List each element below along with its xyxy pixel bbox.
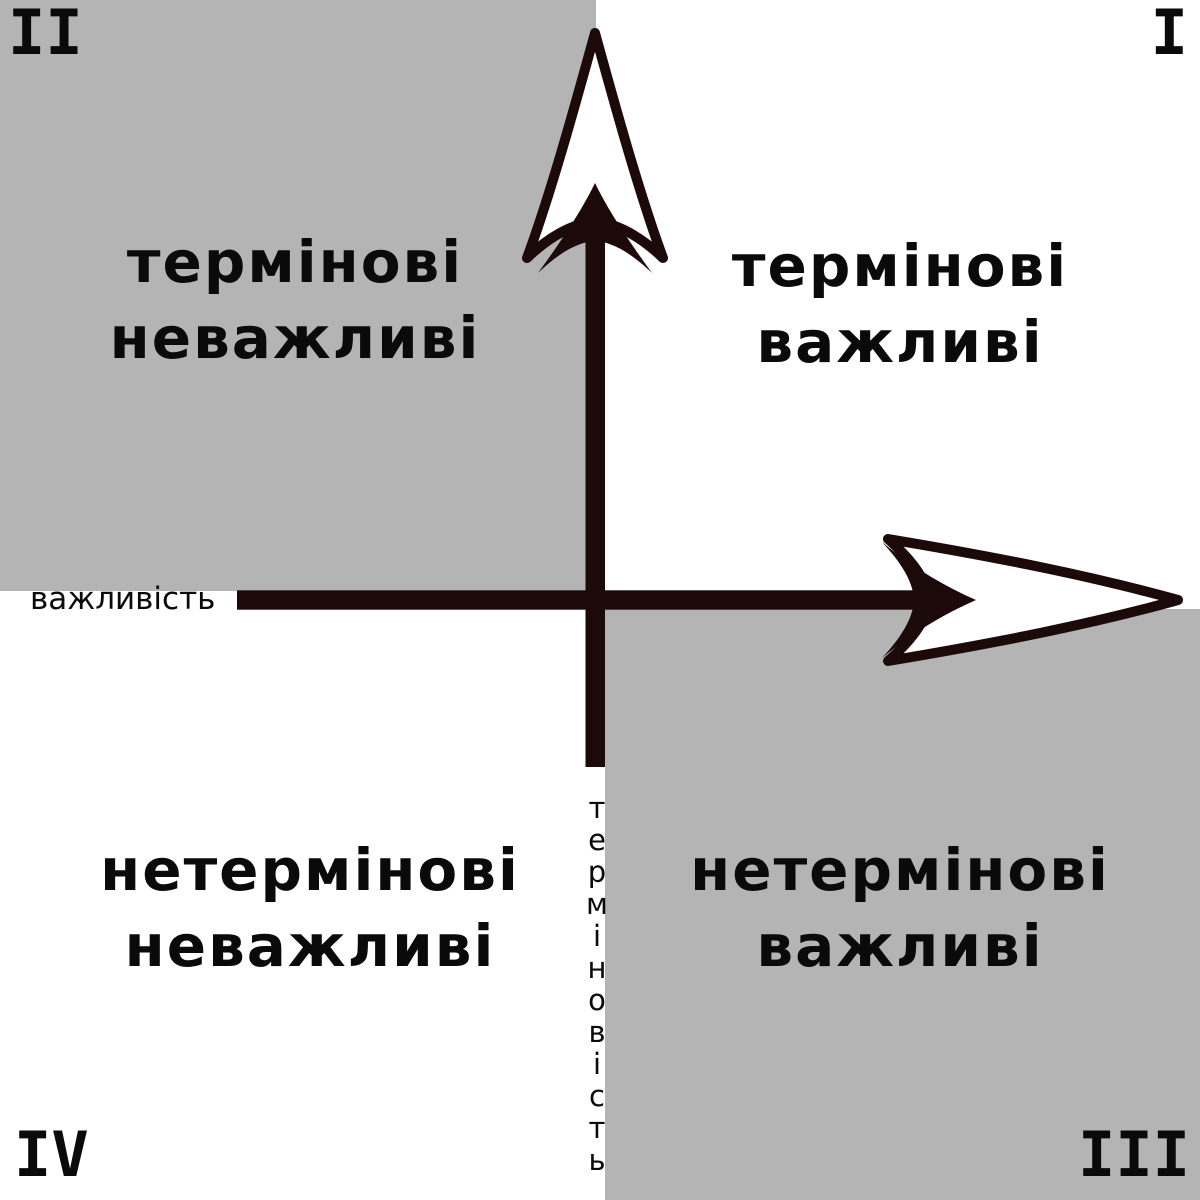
quadrant-iv-label-line1: нетермінові xyxy=(35,832,585,908)
quadrant-iii-label-line1: нетермінові xyxy=(650,832,1150,908)
quadrant-i-label-line2: важливі xyxy=(650,304,1150,380)
eisenhower-matrix-diagram: II I IV III термінові неважливі термінов… xyxy=(0,0,1200,1200)
quadrant-i-label-line1: термінові xyxy=(650,228,1150,304)
quadrant-ii-label: термінові неважливі xyxy=(20,224,570,376)
quadrant-i-numeral: I xyxy=(1151,2,1188,64)
x-axis-label: важливість xyxy=(30,584,215,615)
quadrant-iv-numeral: IV xyxy=(14,1124,89,1186)
quadrant-ii-label-line1: термінові xyxy=(20,224,570,300)
quadrant-iii-label: нетермінові важливі xyxy=(650,832,1150,984)
quadrant-ii-label-line2: неважливі xyxy=(20,300,570,376)
quadrant-iv-label-line2: неважливі xyxy=(35,908,585,984)
y-axis-label: терміновість xyxy=(586,792,608,1176)
quadrant-iv-label: нетермінові неважливі xyxy=(35,832,585,984)
quadrant-iii-numeral: III xyxy=(1078,1124,1190,1186)
quadrant-iii-label-line2: важливі xyxy=(650,908,1150,984)
quadrant-ii-numeral: II xyxy=(8,2,83,64)
quadrant-i-label: термінові важливі xyxy=(650,228,1150,380)
